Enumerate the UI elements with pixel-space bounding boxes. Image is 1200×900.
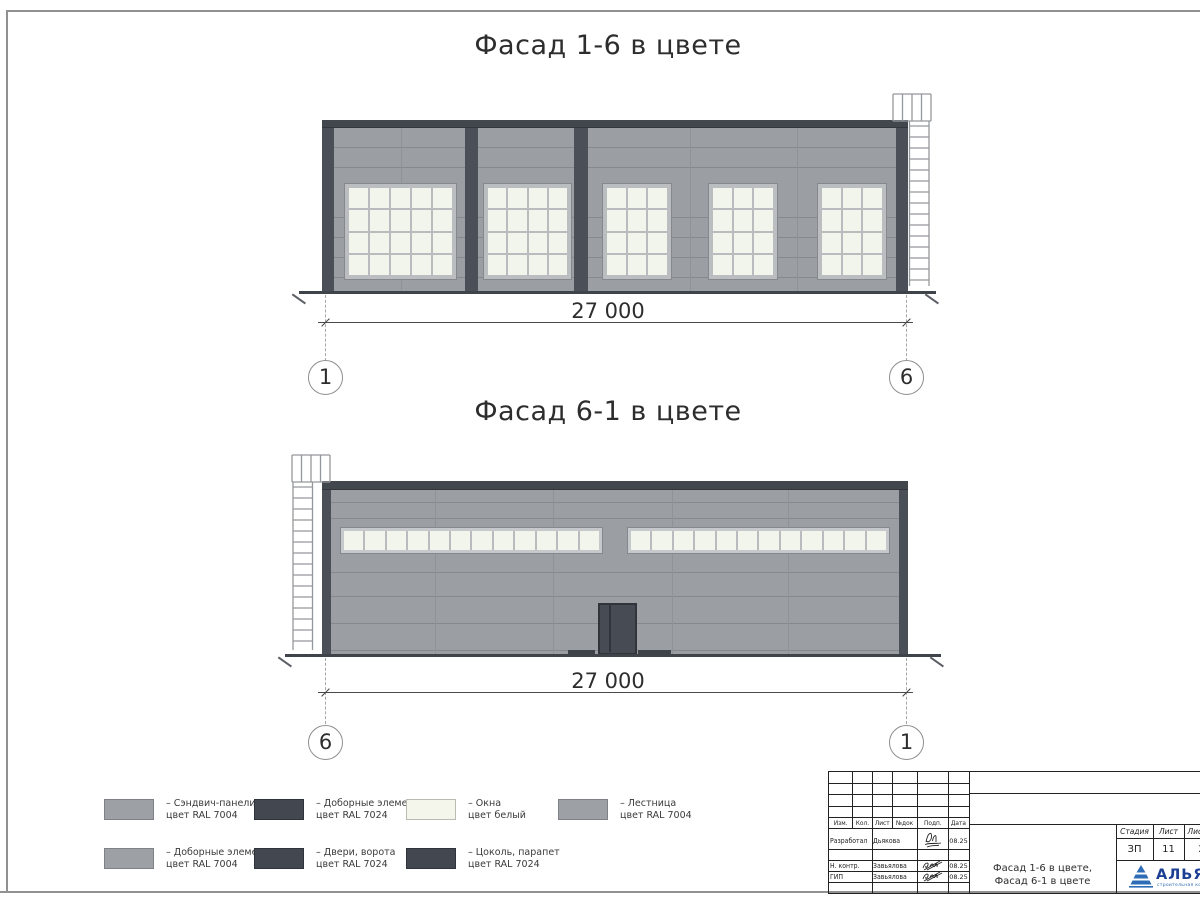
logo-subtext: строительная компания xyxy=(1157,883,1200,888)
window-pane xyxy=(628,188,647,208)
window-pane xyxy=(430,531,449,550)
stamp-role-gip: ГИП xyxy=(830,871,872,882)
window-pane xyxy=(391,233,410,253)
legend-swatch xyxy=(406,799,456,820)
window-pane xyxy=(863,210,882,230)
window-pane xyxy=(607,188,626,208)
stamp-sheets-value: 2 xyxy=(1184,838,1200,860)
window-pane xyxy=(822,210,841,230)
window-pane xyxy=(488,233,506,253)
window-pane xyxy=(843,255,862,275)
stamp-role-developer: Разработал xyxy=(830,834,872,848)
axis-marker-1: 1 xyxy=(308,360,343,395)
window-pane xyxy=(412,233,431,253)
panel-joint-line xyxy=(553,489,554,655)
logo-text: АЛЬЯНС xyxy=(1156,867,1200,883)
window-pane xyxy=(494,531,513,550)
window-pane xyxy=(349,255,368,275)
stamp-line xyxy=(1184,824,1185,860)
window-pane xyxy=(433,210,452,230)
window-pane xyxy=(391,255,410,275)
panel-joint-line xyxy=(797,127,798,292)
window-pane xyxy=(508,210,526,230)
axis-marker-6: 6 xyxy=(889,360,924,395)
window-pane xyxy=(734,210,753,230)
stamp-stage-value: ЗП xyxy=(1116,838,1153,860)
window-pane xyxy=(824,531,843,550)
window-pane xyxy=(412,210,431,230)
pilaster xyxy=(322,120,334,292)
window-pane xyxy=(549,255,567,275)
window-pane xyxy=(754,255,773,275)
window-pane xyxy=(529,188,547,208)
window-pane xyxy=(433,188,452,208)
window-pane xyxy=(713,188,732,208)
extension-line xyxy=(906,295,907,361)
axis-marker-6: 6 xyxy=(308,725,343,760)
window-pane xyxy=(843,188,862,208)
panel-joint-line xyxy=(690,127,691,292)
window-pane xyxy=(488,255,506,275)
window-pane xyxy=(412,188,431,208)
stamp-col-podp: Подп. xyxy=(917,817,948,828)
stamp-line xyxy=(1153,824,1154,860)
parapet xyxy=(322,120,908,128)
window-grid xyxy=(713,188,773,275)
facade-6-1-title: Фасад 6-1 в цвете xyxy=(16,396,1200,427)
window-pane xyxy=(754,188,773,208)
company-logo: АЛЬЯНС строительная компания xyxy=(1116,860,1200,894)
sheet-frame-top xyxy=(6,10,1200,12)
window-pane xyxy=(628,210,647,230)
legend-label: – Сэндвич-панелицвет RAL 7004 xyxy=(166,798,256,821)
pilaster xyxy=(465,120,478,292)
facade-6-1-drawing xyxy=(322,481,908,655)
window-pane xyxy=(549,188,567,208)
window-pane xyxy=(628,233,647,253)
window-pane xyxy=(631,531,650,550)
stamp-col-izm: Изм. xyxy=(829,817,852,828)
stamp-col-ndok: №док xyxy=(892,817,917,828)
window-pane xyxy=(713,233,732,253)
stamp-line xyxy=(969,793,1200,794)
window-pane xyxy=(713,210,732,230)
stamp-document-title: Фасад 1-6 в цвете, Фасад 6-1 в цвете xyxy=(969,824,1116,894)
stamp-line xyxy=(829,893,1200,894)
window-pane xyxy=(863,188,882,208)
legend-swatch xyxy=(254,848,304,869)
window-pane xyxy=(349,210,368,230)
window-pane xyxy=(845,531,864,550)
window-pane xyxy=(408,531,427,550)
stamp-line xyxy=(892,772,893,828)
stamp-line xyxy=(852,772,853,828)
door-leaf-line xyxy=(609,605,611,652)
stamp-line xyxy=(948,772,949,894)
stamp-col-list: Лист xyxy=(872,817,892,828)
window-grid xyxy=(631,531,886,550)
stamp-line xyxy=(917,772,918,894)
window-grid xyxy=(349,188,452,275)
window-pane xyxy=(863,255,882,275)
window-pane xyxy=(391,188,410,208)
window-pane xyxy=(802,531,821,550)
pilaster xyxy=(899,481,908,655)
fire-ladder-right xyxy=(884,90,936,296)
window-pane xyxy=(674,531,693,550)
window-pane xyxy=(648,188,667,208)
drawing-sheet: Фасад 1-6 в цвете Фасад 6-1 в цвете 27 0… xyxy=(0,0,1200,900)
window-pane xyxy=(349,233,368,253)
window-pane xyxy=(754,210,773,230)
legend-label: – Цоколь, парапетцвет RAL 7024 xyxy=(468,847,560,870)
legend-swatch xyxy=(104,848,154,869)
window-pane xyxy=(365,531,384,550)
window-pane xyxy=(472,531,491,550)
window-pane xyxy=(607,210,626,230)
signature-developer xyxy=(919,829,947,849)
facade-1-6-drawing xyxy=(322,120,908,292)
window xyxy=(817,183,887,280)
window-pane xyxy=(549,210,567,230)
window-pane xyxy=(843,210,862,230)
window-pane xyxy=(412,255,431,275)
stamp-date-ncontr: 08.25 xyxy=(948,860,969,871)
stamp-line xyxy=(1116,860,1200,861)
window-pane xyxy=(781,531,800,550)
title-block: Изм. Кол. Лист №док Подп. Дата Разработа… xyxy=(828,771,1200,894)
window-pane xyxy=(734,255,753,275)
window xyxy=(602,183,672,280)
window-pane xyxy=(349,188,368,208)
window-grid xyxy=(488,188,567,275)
logo-triangle-icon xyxy=(1128,865,1154,888)
panel-joint-line xyxy=(324,502,906,503)
window-pane xyxy=(738,531,757,550)
window-pane xyxy=(433,255,452,275)
pilaster xyxy=(574,120,588,292)
window-pane xyxy=(822,233,841,253)
legend-swatch xyxy=(406,848,456,869)
panel-joint-line xyxy=(324,596,906,597)
window-pane xyxy=(433,233,452,253)
dimension-value: 27 000 xyxy=(508,299,708,323)
stamp-line xyxy=(872,772,873,894)
panel-joint-line xyxy=(324,167,906,168)
panel-joint-line xyxy=(324,147,906,148)
window-pane xyxy=(370,255,389,275)
window-pane xyxy=(488,188,506,208)
window-pane xyxy=(370,210,389,230)
window-pane xyxy=(451,531,470,550)
legend-label: – Окнацвет белый xyxy=(468,798,526,821)
ground-line-top xyxy=(299,291,936,294)
window-pane xyxy=(648,255,667,275)
window-pane xyxy=(822,188,841,208)
window-pane xyxy=(607,255,626,275)
stamp-line xyxy=(1116,838,1200,839)
window-pane xyxy=(843,233,862,253)
facade-1-6-title: Фасад 1-6 в цвете xyxy=(16,30,1200,61)
window-pane xyxy=(648,210,667,230)
panel-joint-line xyxy=(324,518,906,519)
ground-tick xyxy=(278,657,292,667)
window-pane xyxy=(759,531,778,550)
window-pane xyxy=(628,255,647,275)
window-pane xyxy=(580,531,599,550)
stamp-name-gip: Завьялова xyxy=(873,871,917,882)
ground-line-bottom xyxy=(285,654,941,657)
window-pane xyxy=(734,233,753,253)
legend-swatch xyxy=(104,799,154,820)
fire-ladder-left xyxy=(282,451,334,657)
stamp-line xyxy=(969,772,970,894)
parapet xyxy=(322,481,908,490)
window-pane xyxy=(549,233,567,253)
stamp-line xyxy=(969,824,1200,825)
panel-joint-line xyxy=(324,572,906,573)
window-pane xyxy=(508,233,526,253)
window-grid xyxy=(822,188,882,275)
window-pane xyxy=(370,188,389,208)
window-pane xyxy=(754,233,773,253)
legend-swatch xyxy=(558,799,608,820)
extension-line xyxy=(325,295,326,361)
entrance-door xyxy=(598,603,637,655)
window-pane xyxy=(822,255,841,275)
stamp-col-data: Дата xyxy=(948,817,969,828)
ribbon-window xyxy=(627,527,890,554)
stamp-date-gip: 08.25 xyxy=(948,871,969,882)
window-pane xyxy=(717,531,736,550)
window-pane xyxy=(537,531,556,550)
stamp-col-kol: Кол. xyxy=(852,817,872,828)
sheet-frame-left xyxy=(6,10,8,893)
window xyxy=(344,183,457,280)
window-pane xyxy=(391,210,410,230)
stamp-sheet-value: 11 xyxy=(1153,838,1184,860)
legend-label: – Лестницацвет RAL 7004 xyxy=(620,798,692,821)
stamp-date-developer: 08.25 xyxy=(948,834,969,848)
window-pane xyxy=(508,188,526,208)
axis-marker-1: 1 xyxy=(889,725,924,760)
panel-joint-line xyxy=(788,489,789,655)
dimension-value: 27 000 xyxy=(508,669,708,693)
window-pane xyxy=(488,210,506,230)
window-grid xyxy=(344,531,599,550)
window-pane xyxy=(867,531,886,550)
stamp-name-developer: Дьякова xyxy=(873,834,917,848)
stamp-name-ncontr: Завьялова xyxy=(873,860,917,871)
window-pane xyxy=(734,188,753,208)
stamp-sheet-label: Лист xyxy=(1153,824,1184,838)
window-pane xyxy=(387,531,406,550)
window-pane xyxy=(648,233,667,253)
window-pane xyxy=(515,531,534,550)
window-pane xyxy=(695,531,714,550)
legend-label: – Двери, воротацвет RAL 7024 xyxy=(316,847,396,870)
legend-swatch xyxy=(254,799,304,820)
ground-tick xyxy=(930,657,944,667)
window-pane xyxy=(344,531,363,550)
window xyxy=(708,183,778,280)
window-grid xyxy=(607,188,667,275)
ground-tick xyxy=(292,294,306,304)
stamp-stage-label: Стадия xyxy=(1116,824,1153,838)
window-pane xyxy=(607,233,626,253)
stamp-sheets-label: Листов xyxy=(1184,824,1200,838)
window-pane xyxy=(863,233,882,253)
stamp-role-ncontr: Н. контр. xyxy=(830,860,872,871)
window-pane xyxy=(713,255,732,275)
window-pane xyxy=(652,531,671,550)
panel-joint-line xyxy=(672,489,673,655)
window-pane xyxy=(370,233,389,253)
ribbon-window xyxy=(340,527,603,554)
panel-joint-line xyxy=(435,489,436,655)
window-pane xyxy=(529,255,547,275)
stamp-line xyxy=(1116,824,1117,894)
window-pane xyxy=(508,255,526,275)
window-pane xyxy=(558,531,577,550)
window-pane xyxy=(529,233,547,253)
window xyxy=(483,183,572,280)
window-pane xyxy=(529,210,547,230)
